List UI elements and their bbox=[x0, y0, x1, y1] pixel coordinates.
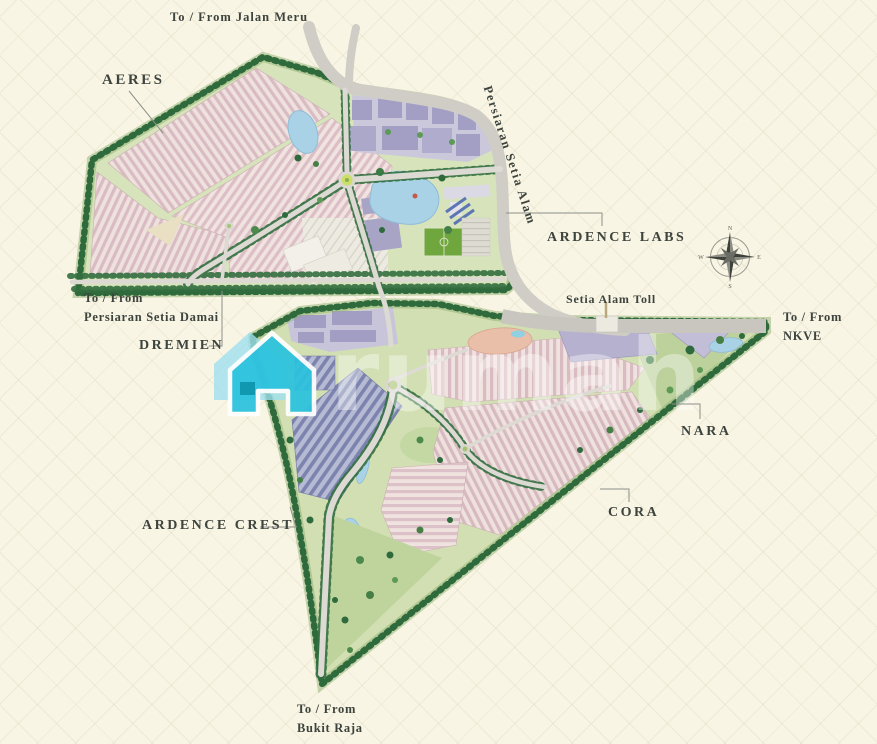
label-bukit-raja: To / From Bukit Raja bbox=[297, 700, 363, 738]
cora-leader bbox=[600, 489, 629, 502]
label-setia-damai-line2: Persiaran Setia Damai bbox=[84, 308, 219, 327]
label-aeres: AERES bbox=[102, 72, 165, 89]
compass-north-label: N bbox=[728, 226, 733, 232]
watermark-text: rumah bbox=[330, 317, 703, 434]
label-nkve-line2: NKVE bbox=[783, 327, 842, 346]
compass-east-label: E bbox=[757, 255, 761, 261]
label-nkve-line1: To / From bbox=[783, 308, 842, 327]
label-setia-alam-toll: Setia Alam Toll bbox=[566, 292, 656, 307]
label-nkve: To / From NKVE bbox=[783, 308, 842, 346]
label-nara: NARA bbox=[681, 424, 731, 440]
label-persiaran-setia-damai: To / From Persiaran Setia Damai bbox=[84, 289, 219, 327]
label-setia-damai-line1: To / From bbox=[84, 289, 219, 308]
map-art: rumah N E S W bbox=[0, 0, 877, 744]
label-jalan-meru: To / From Jalan Meru bbox=[170, 8, 308, 27]
label-ardence-crest: ARDENCE CREST bbox=[142, 518, 294, 534]
label-bukit-raja-line2: Bukit Raja bbox=[297, 719, 363, 738]
compass-south-label: S bbox=[728, 284, 731, 290]
compass-rose: N E S W bbox=[698, 226, 761, 290]
compass-west-label: W bbox=[698, 255, 704, 261]
label-cora: CORA bbox=[608, 505, 659, 521]
label-bukit-raja-line1: To / From bbox=[297, 700, 363, 719]
label-dremien: DREMIEN bbox=[139, 338, 224, 354]
label-ardence-labs: ARDENCE LABS bbox=[547, 230, 686, 246]
masterplan-map: rumah N E S W To / From Jalan bbox=[0, 0, 877, 744]
